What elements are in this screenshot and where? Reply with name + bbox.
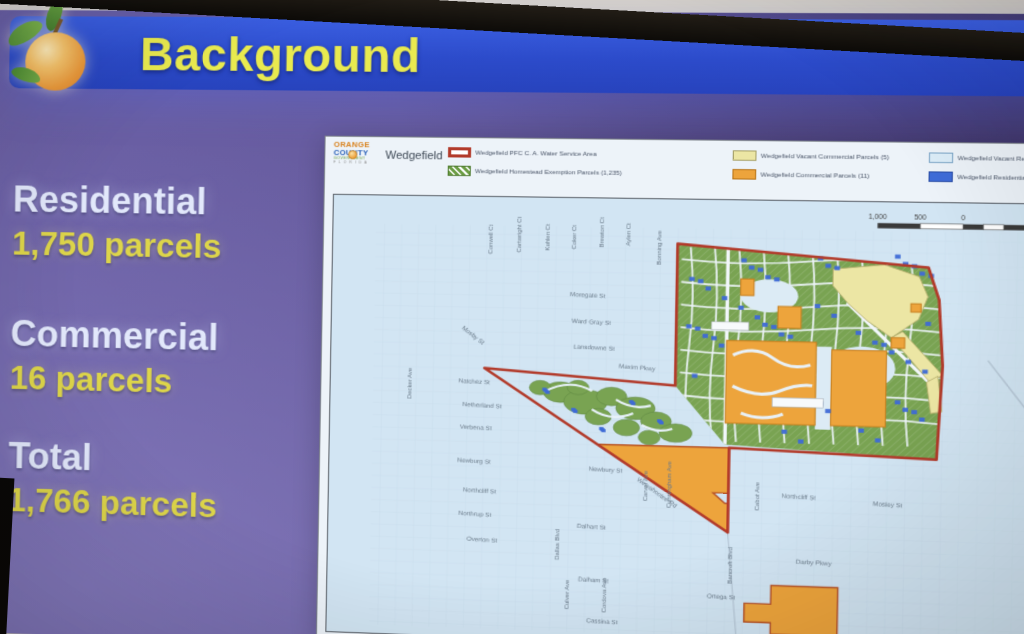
- street-label: Aylen Ct: [626, 223, 633, 247]
- street-label: Culver Ave: [564, 579, 571, 609]
- legend-item: Wedgefield PFC C. A. Water Service Area: [448, 147, 597, 159]
- scale-label: 500: [914, 214, 927, 221]
- street-label: Cunningham Ave: [667, 460, 674, 508]
- legend-swatch: [929, 152, 953, 163]
- legend-item: Wedgefield Vacant Residential Parcels (8…: [929, 152, 1024, 164]
- scale-label: 0: [961, 215, 966, 222]
- photo-of-projected-slide: Background 8 Residential 1,750 parcels C…: [0, 0, 1024, 634]
- stat-value: 1,766 parcels: [7, 481, 312, 529]
- legend-swatch: [733, 150, 757, 161]
- street-label: Decker Ave: [407, 367, 414, 399]
- parcel-stats-list: Residential 1,750 parcels Commercial 16 …: [7, 178, 317, 528]
- street-label: Conwell Ct: [489, 224, 496, 254]
- street-label: Cabot Ave: [755, 481, 762, 510]
- street-label: Bonning Ave: [657, 230, 664, 265]
- legend-swatch: [448, 147, 471, 158]
- legend-swatch: [732, 169, 756, 180]
- legend-label: Wedgefield Homestead Exemption Parcels (…: [475, 167, 622, 176]
- street-label: Carver Ave: [643, 470, 650, 501]
- legend-item: Wedgefield Vacant Commercial Parcels (5): [733, 150, 889, 162]
- scale-label: 1,000: [869, 214, 888, 222]
- stat-group: Residential 1,750 parcels: [12, 178, 318, 267]
- street-label: Cartwright Ct: [517, 216, 524, 252]
- orange-fruit-logo-icon: [3, 10, 117, 105]
- map-frame: 1,00050001,000 Feet Conwell CtCartwright…: [325, 194, 1024, 634]
- grid-fade: [944, 232, 1024, 634]
- street-label: Dallas Blvd: [554, 529, 561, 560]
- legend-item: Wedgefield Commercial Parcels (11): [732, 169, 869, 181]
- legend-item: Wedgefield Homestead Exemption Parcels (…: [448, 166, 622, 178]
- legend-label: Wedgefield PFC C. A. Water Service Area: [475, 149, 596, 158]
- page-title: Background: [139, 17, 421, 92]
- legend-swatch: [448, 166, 471, 177]
- legend-swatch: [928, 171, 952, 182]
- legend-label: Wedgefield Vacant Residential Parcels (8…: [958, 154, 1024, 163]
- street-label: Bancroft Blvd: [727, 547, 734, 584]
- road-gap: [815, 347, 832, 430]
- stat-label: Commercial: [10, 313, 315, 362]
- stat-group: Total 1,766 parcels: [7, 435, 313, 529]
- legend-label: Wedgefield Vacant Commercial Parcels (5): [761, 152, 889, 161]
- stat-value: 16 parcels: [9, 359, 314, 405]
- map-panel: ORANGE COUNTY GOVERNMENT F L O R I D A W…: [316, 136, 1024, 634]
- street-label: Coker Ct: [572, 225, 579, 250]
- legend-label: Wedgefield Commercial Parcels (11): [760, 171, 869, 180]
- street-label: Kuhlen Ct: [545, 224, 552, 251]
- legend-item: Wedgefield Residential Parcels (1,666): [928, 171, 1024, 183]
- presentation-slide: Background 8 Residential 1,750 parcels C…: [0, 10, 1024, 634]
- legend-label: Wedgefield Residential Parcels (1,666): [957, 173, 1024, 182]
- street-label: Cordova Ave: [601, 577, 608, 613]
- street-label: Brewton Ct: [599, 217, 606, 248]
- stat-value: 1,750 parcels: [12, 224, 317, 267]
- stat-group: Commercial 16 parcels: [9, 313, 315, 405]
- wedgefield-parcel-map: 1,00050001,000 Feet Conwell CtCartwright…: [326, 195, 1024, 634]
- stat-label: Total: [8, 435, 313, 486]
- stat-label: Residential: [13, 178, 318, 225]
